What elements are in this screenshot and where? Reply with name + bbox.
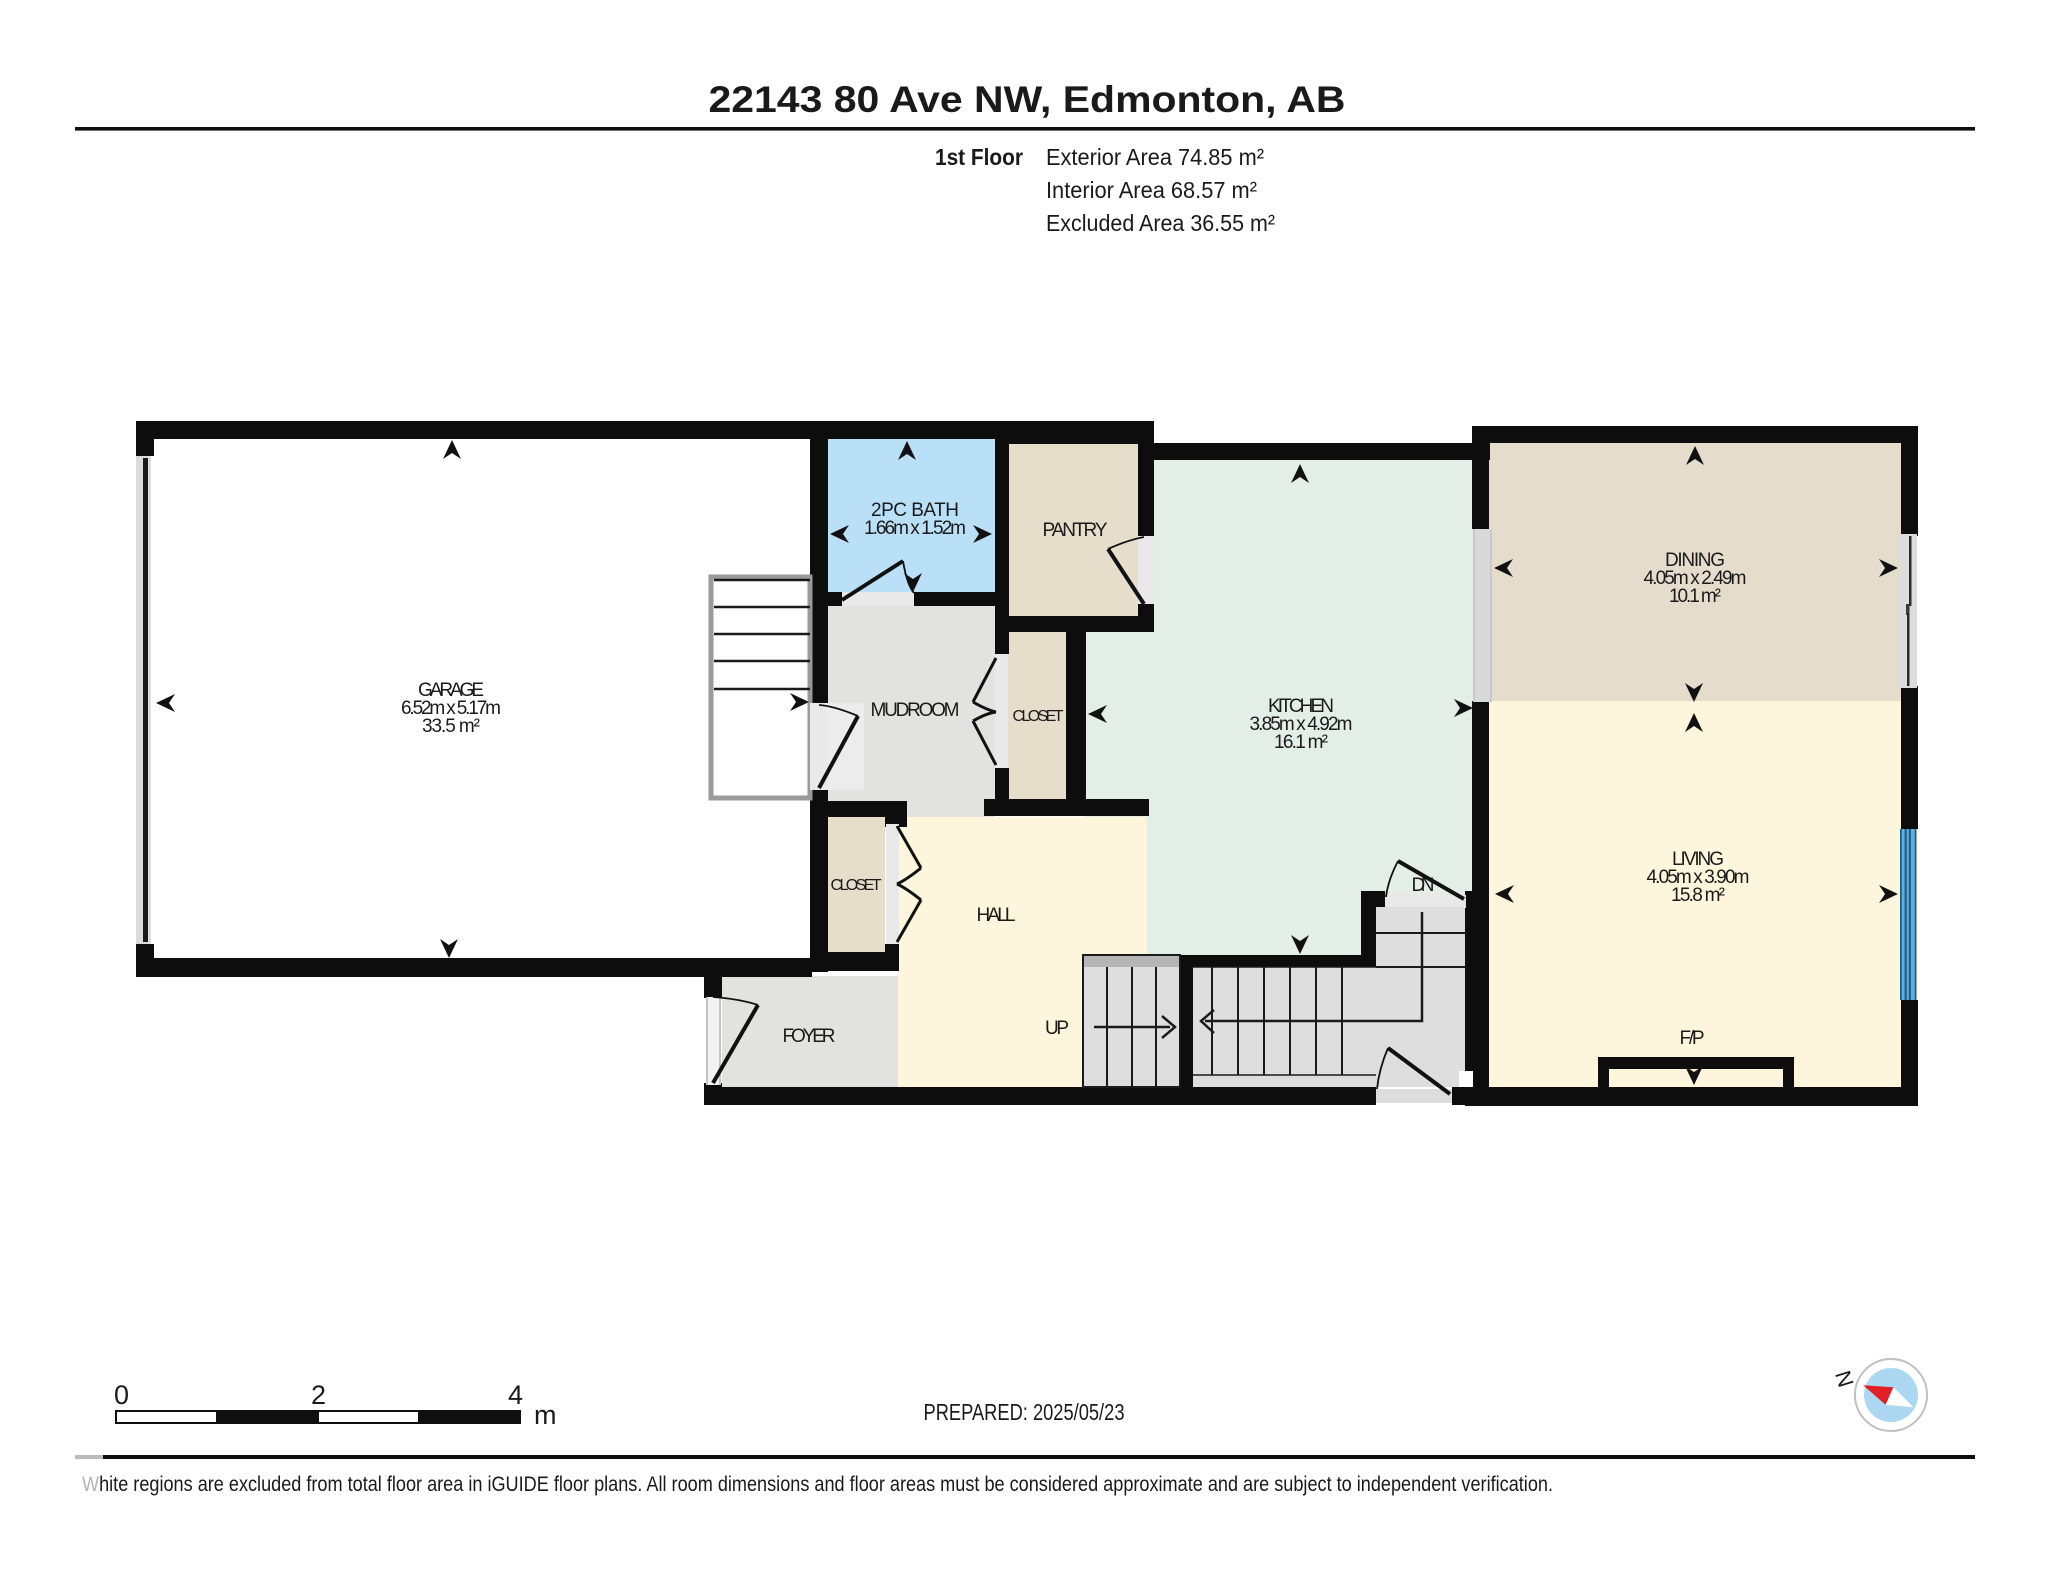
svg-text:4: 4 [508,1380,523,1410]
svg-text:22143 80 Ave NW, Edmonton, AB: 22143 80 Ave NW, Edmonton, AB [709,79,1346,120]
svg-text:PANTRY: PANTRY [1043,520,1108,541]
svg-text:F/P: F/P [1680,1028,1705,1049]
svg-text:10.1 m²: 10.1 m² [1669,586,1721,607]
svg-text:DN: DN [1412,875,1435,896]
svg-text:N: N [1830,1368,1859,1391]
svg-text:Excluded Area 36.55 m²: Excluded Area 36.55 m² [1046,210,1275,236]
svg-text:m: m [534,1400,557,1430]
svg-text:UP: UP [1045,1018,1069,1039]
svg-text:33.5 m²: 33.5 m² [422,716,480,737]
svg-text:CLOSET: CLOSET [831,877,882,894]
svg-text:Interior Area 68.57 m²: Interior Area 68.57 m² [1046,177,1257,203]
svg-text:0: 0 [114,1380,129,1410]
svg-text:PREPARED: 2025/05/23: PREPARED: 2025/05/23 [924,1399,1125,1425]
svg-text:HALL: HALL [977,905,1016,926]
svg-text:1.66m x 1.52m: 1.66m x 1.52m [864,518,966,539]
svg-text:FOYER: FOYER [783,1026,836,1047]
svg-text:CLOSET: CLOSET [1013,708,1064,725]
svg-text:1st Floor: 1st Floor [935,144,1023,170]
svg-text:MUDROOM: MUDROOM [871,700,960,721]
svg-text:Exterior Area 74.85 m²: Exterior Area 74.85 m² [1046,144,1264,170]
svg-text:15.8 m²: 15.8 m² [1671,885,1725,906]
svg-text:2: 2 [311,1380,326,1410]
svg-text:White regions are excluded fro: White regions are excluded from total fl… [82,1472,1553,1496]
svg-text:16.1 m²: 16.1 m² [1274,732,1328,753]
